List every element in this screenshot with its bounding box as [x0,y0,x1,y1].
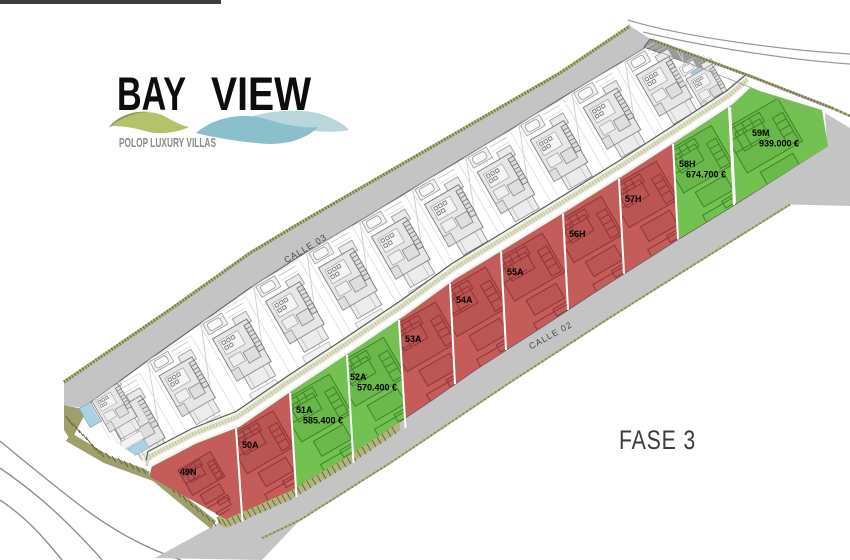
svg-text:52A: 52A [350,372,367,382]
svg-text:674.700 €: 674.700 € [686,169,726,179]
svg-text:59M: 59M [752,128,770,138]
svg-text:57H: 57H [625,194,642,204]
svg-text:570.400 €: 570.400 € [357,382,397,392]
svg-text:FASE 3: FASE 3 [619,425,696,455]
svg-text:BAY: BAY [117,67,186,120]
svg-text:54A: 54A [456,295,473,305]
svg-text:POLOP LUXURY VILLAS: POLOP LUXURY VILLAS [119,136,216,150]
svg-text:939.000 €: 939.000 € [759,138,799,148]
svg-text:51A: 51A [296,405,313,415]
svg-text:53A: 53A [405,334,422,344]
svg-text:49N: 49N [180,467,197,477]
svg-text:58H: 58H [679,159,696,169]
svg-text:56H: 56H [569,229,586,239]
svg-text:55A: 55A [507,267,524,277]
svg-text:50A: 50A [242,440,259,450]
svg-text:585.400 €: 585.400 € [303,415,343,425]
